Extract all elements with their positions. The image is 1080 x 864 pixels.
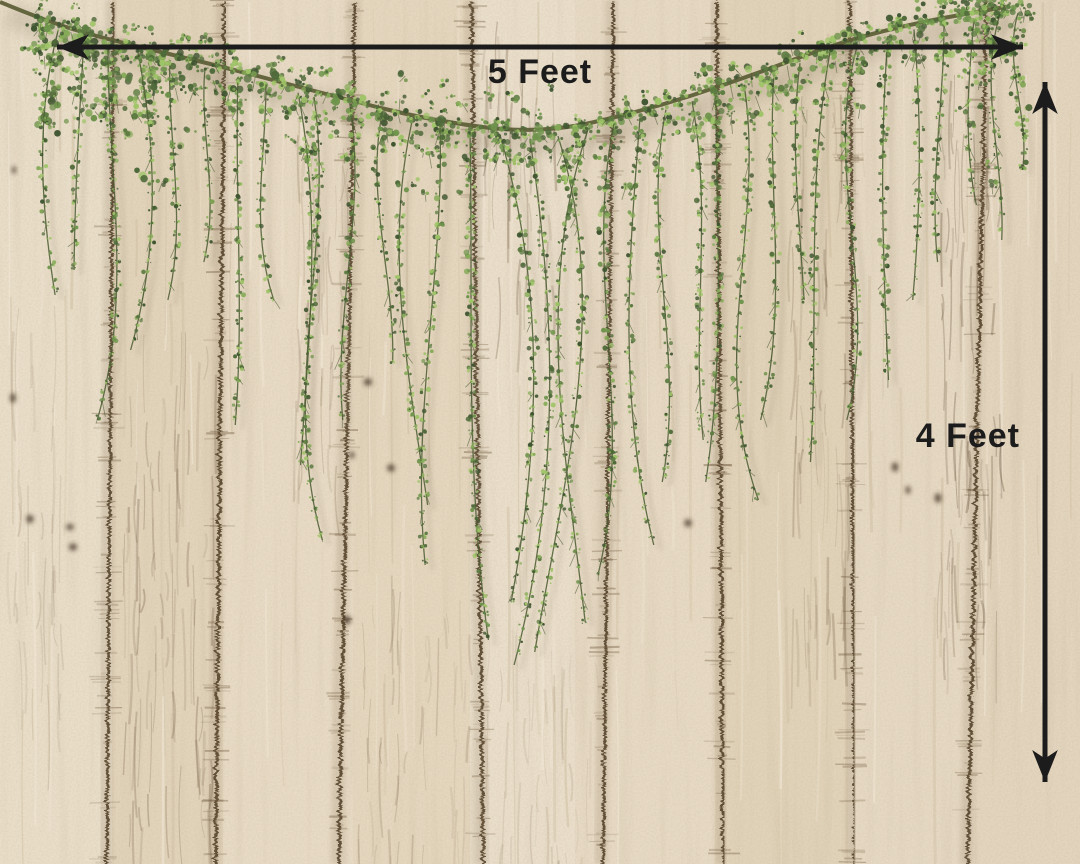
width-label: 5 Feet xyxy=(488,53,592,91)
scene-svg: 5 Feet 4 Feet xyxy=(0,0,1080,864)
height-label: 4 Feet xyxy=(916,417,1020,455)
product-photo: 5 Feet 4 Feet xyxy=(0,0,1080,864)
